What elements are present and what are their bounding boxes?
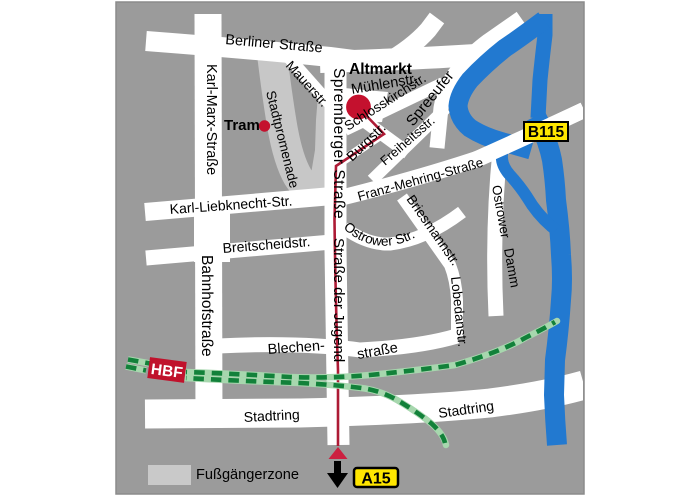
svg-text:Tram: Tram bbox=[224, 117, 260, 134]
svg-text:A15: A15 bbox=[361, 471, 390, 488]
svg-text:Karl-Marx-Straße: Karl-Marx-Straße bbox=[203, 64, 219, 175]
svg-text:Fußgängerzone: Fußgängerzone bbox=[196, 467, 299, 483]
svg-text:B115: B115 bbox=[528, 124, 565, 141]
svg-text:Bahnhofstraße: Bahnhofstraße bbox=[198, 255, 215, 357]
svg-text:Stadtring: Stadtring bbox=[243, 406, 300, 425]
svg-text:Spremberger Straße: Spremberger Straße bbox=[330, 68, 347, 219]
svg-text:Straße der Jugend: Straße der Jugend bbox=[330, 238, 347, 362]
